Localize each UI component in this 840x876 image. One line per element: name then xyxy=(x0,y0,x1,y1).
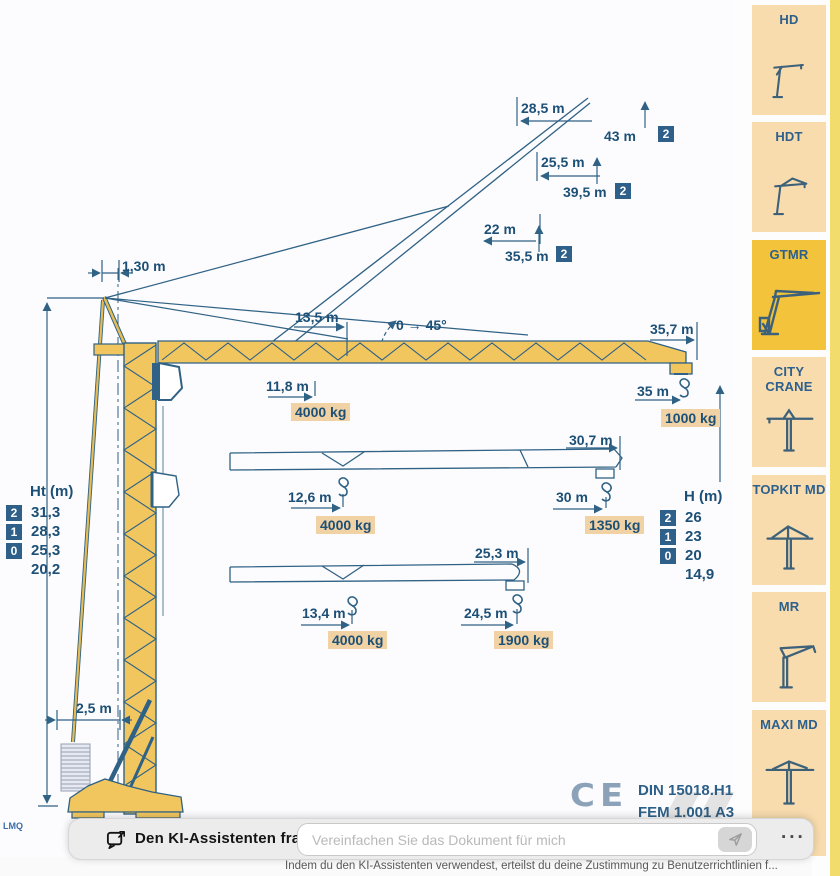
table-row: 20,2 xyxy=(6,560,73,579)
dim-luffing-radius-1: 28,5 m xyxy=(521,100,565,116)
label-jib3-tip-load: 1900 kg xyxy=(494,631,553,649)
table-row: 0 20 xyxy=(660,546,722,565)
config-badge: 2 xyxy=(660,510,676,526)
dim-jib1-length: 35,7 m xyxy=(650,321,694,337)
page-edge-strip xyxy=(830,0,840,876)
dim-jib3-length: 25,3 m xyxy=(475,545,519,561)
sidebar-item-gtmr[interactable]: GTMR xyxy=(752,240,826,350)
table-row: 1 23 xyxy=(660,527,722,546)
table-row: 0 25,3 xyxy=(6,541,73,560)
assistant-disclaimer: Indem du den KI-Assistenten verwendest, … xyxy=(285,860,812,872)
dim-slew: 13,5 m xyxy=(295,309,339,325)
label-jib1-tip-load: 1000 kg xyxy=(661,409,720,427)
paper-plane-icon xyxy=(727,831,744,848)
crane-thumb-icon xyxy=(756,282,822,342)
crane-thumb-icon xyxy=(761,636,817,694)
dim-apex-offset: 1,30 m xyxy=(122,258,166,274)
ht-table: Ht (m) 2 31,3 1 28,3 0 25,3 20,2 xyxy=(6,483,73,579)
config-badge: 2 xyxy=(658,126,674,142)
label-jib2-tip-load: 1350 kg xyxy=(585,516,644,534)
config-badge: 0 xyxy=(660,548,676,564)
sidebar-item-mr[interactable]: MR xyxy=(752,592,826,702)
dim-jib3-tip-radius: 24,5 m xyxy=(464,605,508,621)
dim-base-width: 2,5 m xyxy=(76,700,112,716)
ht-table-title: Ht (m) xyxy=(30,483,73,500)
crane-thumb-icon xyxy=(763,166,815,224)
crane-thumb-icon xyxy=(761,754,817,812)
crane-diagram-page: 1,30 m 28,5 m 43 m 2 25,5 m 39,5 m 2 22 … xyxy=(0,0,745,876)
dim-luffing-angle: 0 → 45° xyxy=(396,317,447,333)
crane-type-sidebar: HD HDT GTMR CITY CRANE TOPKIT MD xyxy=(735,0,830,876)
table-row: 1 28,3 xyxy=(6,522,73,541)
more-options-button[interactable]: ... xyxy=(775,821,812,845)
screen: 1,30 m 28,5 m 43 m 2 25,5 m 39,5 m 2 22 … xyxy=(0,0,840,876)
config-badge: 2 xyxy=(556,246,572,262)
crane-thumb-icon xyxy=(761,519,817,577)
dim-luffing-height-3: 35,5 m xyxy=(505,248,549,264)
send-button[interactable] xyxy=(718,827,752,852)
config-badge: 2 xyxy=(6,505,22,521)
h-table: H (m) 2 26 1 23 0 20 14,9 xyxy=(660,488,722,584)
ce-mark: CE xyxy=(570,778,628,815)
sidebar-item-topkit-md[interactable]: TOPKIT MD xyxy=(752,475,826,585)
table-row: 2 26 xyxy=(660,508,722,527)
dim-jib2-length: 30,7 m xyxy=(569,432,613,448)
dim-luffing-radius-3: 22 m xyxy=(484,221,516,237)
dim-jib1-tip-radius: 35 m xyxy=(637,383,669,399)
chat-bubble-icon xyxy=(105,828,128,851)
label-jib1-max-load: 4000 kg xyxy=(291,403,350,421)
corner-label: LMQ xyxy=(3,821,23,831)
config-badge: 1 xyxy=(660,529,676,545)
crane-thumb-icon xyxy=(763,49,815,107)
sidebar-item-hd[interactable]: HD xyxy=(752,5,826,115)
dim-luffing-height-2: 39,5 m xyxy=(563,184,607,200)
dim-jib2-tip-radius: 30 m xyxy=(556,489,588,505)
dim-luffing-radius-2: 25,5 m xyxy=(541,154,585,170)
dim-jib2-load-radius: 12,6 m xyxy=(288,489,332,505)
crane-thumb-icon xyxy=(761,401,817,459)
config-badge: 0 xyxy=(6,543,22,559)
assistant-input-wrap xyxy=(297,823,757,856)
table-row: 14,9 xyxy=(660,565,722,584)
label-jib3-max-load: 4000 kg xyxy=(328,631,387,649)
dim-jib3-load-radius: 13,4 m xyxy=(302,605,346,621)
label-jib2-max-load: 4000 kg xyxy=(316,516,375,534)
assistant-input[interactable] xyxy=(297,823,757,856)
config-badge: 1 xyxy=(6,524,22,540)
sidebar-item-city-crane[interactable]: CITY CRANE xyxy=(752,357,826,467)
table-row: 2 31,3 xyxy=(6,503,73,522)
crane-line-art xyxy=(0,0,745,820)
h-table-title: H (m) xyxy=(684,488,722,505)
dim-jib1-load-radius: 11,8 m xyxy=(266,378,309,394)
ai-assistant-bar: Den KI-Assistenten fragen ... xyxy=(68,818,814,860)
dim-luffing-height-1: 43 m xyxy=(604,128,636,144)
sidebar-item-hdt[interactable]: HDT xyxy=(752,122,826,232)
config-badge: 2 xyxy=(615,183,631,199)
